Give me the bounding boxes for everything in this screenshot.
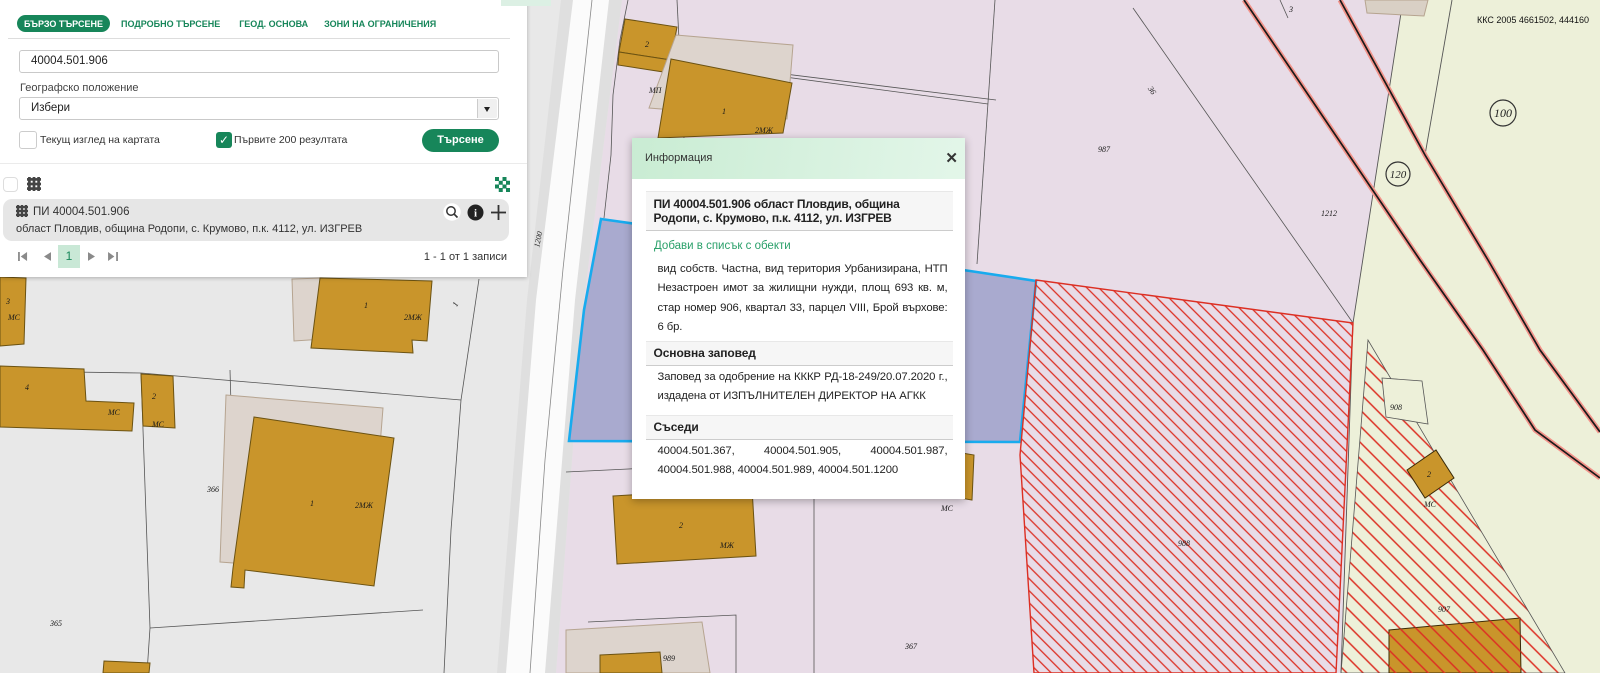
svg-text:100: 100 <box>1494 106 1512 120</box>
svg-text:120: 120 <box>1390 169 1407 181</box>
svg-text:1: 1 <box>310 499 314 508</box>
svg-text:367: 367 <box>904 642 918 651</box>
svg-text:2МЖ: 2МЖ <box>404 313 423 322</box>
svg-text:988: 988 <box>1178 539 1190 548</box>
svg-text:907: 907 <box>1438 605 1451 614</box>
svg-text:i: i <box>474 207 477 219</box>
svg-text:2: 2 <box>679 521 683 530</box>
svg-text:908: 908 <box>1390 403 1402 412</box>
svg-text:ККС 2005 4661502, 444160: ККС 2005 4661502, 444160 <box>1477 15 1589 25</box>
svg-text:4: 4 <box>25 383 29 392</box>
svg-text:МС: МС <box>107 408 121 417</box>
svg-text:989: 989 <box>663 654 675 663</box>
svg-text:МС: МС <box>7 313 21 322</box>
svg-text:2: 2 <box>1427 470 1431 479</box>
svg-text:3: 3 <box>1288 5 1293 14</box>
svg-text:МС: МС <box>940 504 954 513</box>
svg-text:1: 1 <box>364 301 368 310</box>
svg-text:МП: МП <box>648 86 663 95</box>
svg-text:3: 3 <box>5 297 10 306</box>
svg-text:987: 987 <box>1098 145 1111 154</box>
svg-text:2: 2 <box>152 392 156 401</box>
svg-text:2: 2 <box>645 40 649 49</box>
svg-text:366: 366 <box>206 485 219 494</box>
svg-text:2МЖ: 2МЖ <box>355 501 374 510</box>
svg-text:МС: МС <box>151 420 165 429</box>
svg-text:МЖ: МЖ <box>719 541 735 550</box>
svg-text:1: 1 <box>722 107 726 116</box>
svg-text:1212: 1212 <box>1321 209 1337 218</box>
svg-text:МС: МС <box>1423 500 1437 509</box>
svg-text:2МЖ: 2МЖ <box>755 126 774 135</box>
svg-text:365: 365 <box>49 619 62 628</box>
